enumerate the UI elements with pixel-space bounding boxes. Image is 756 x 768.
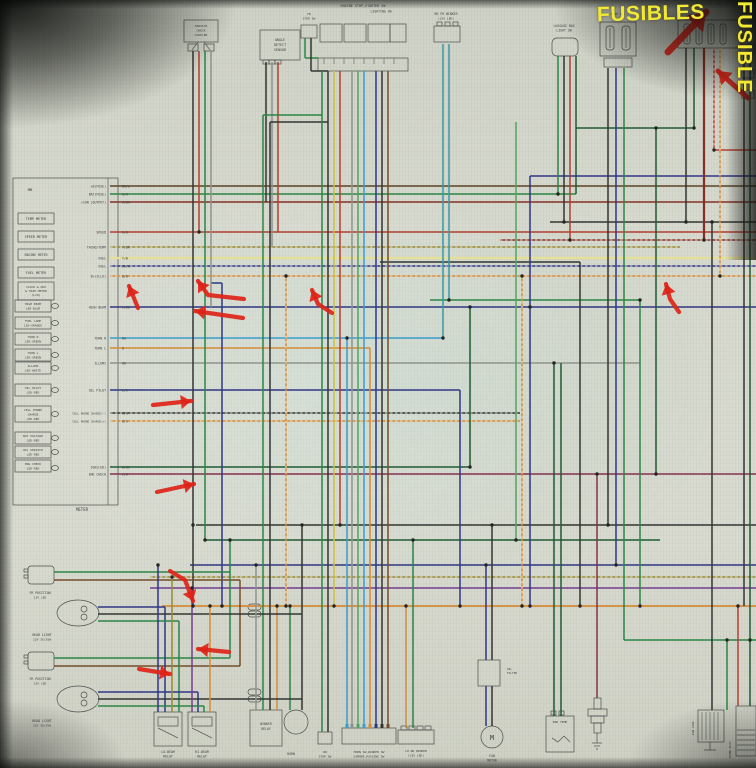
red-arrow-head	[198, 643, 209, 657]
red-arrow-head	[180, 395, 191, 409]
red-arrow-head	[195, 305, 206, 319]
fusibles-annotation: FUSIBLES	[597, 1, 705, 28]
wiring-diagram-photo: MBTEMP METERSPEED METERENGINE METERFUEL …	[0, 0, 756, 768]
red-arrow-annotations-layer	[0, 0, 756, 768]
red-arrow-head	[159, 665, 170, 679]
fusible-annotation: FUSIBLE	[732, 1, 755, 176]
